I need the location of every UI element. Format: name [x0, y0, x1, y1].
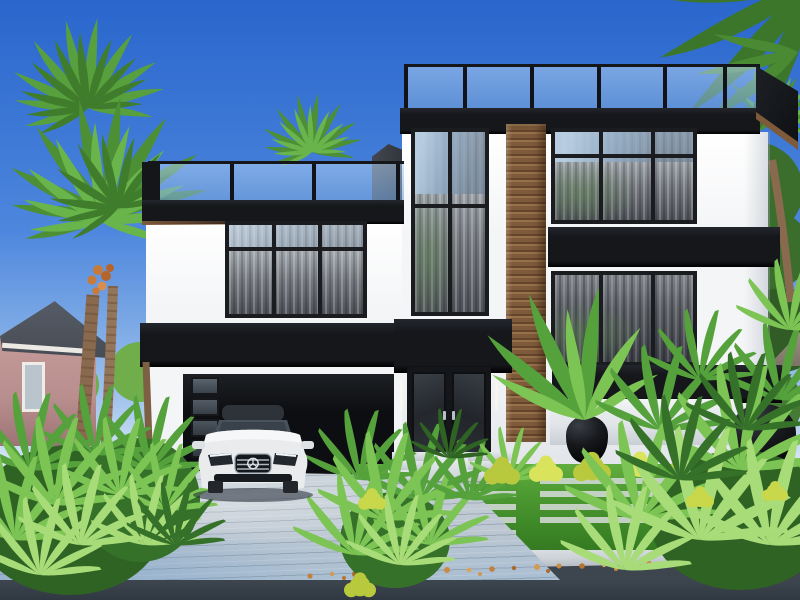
car-mirror	[192, 441, 205, 449]
planter-box-plant	[410, 408, 489, 461]
foreground-plants	[0, 0, 800, 600]
white-sedan	[186, 403, 320, 503]
car-mirror	[301, 441, 314, 449]
car-wheel	[283, 481, 298, 493]
car-wheel	[208, 481, 223, 493]
entry-plant-cluster	[291, 408, 491, 597]
car-lower-intake	[214, 474, 292, 482]
potted-palm	[484, 286, 662, 430]
car-roof	[222, 405, 284, 421]
architectural-rendering	[0, 0, 800, 600]
